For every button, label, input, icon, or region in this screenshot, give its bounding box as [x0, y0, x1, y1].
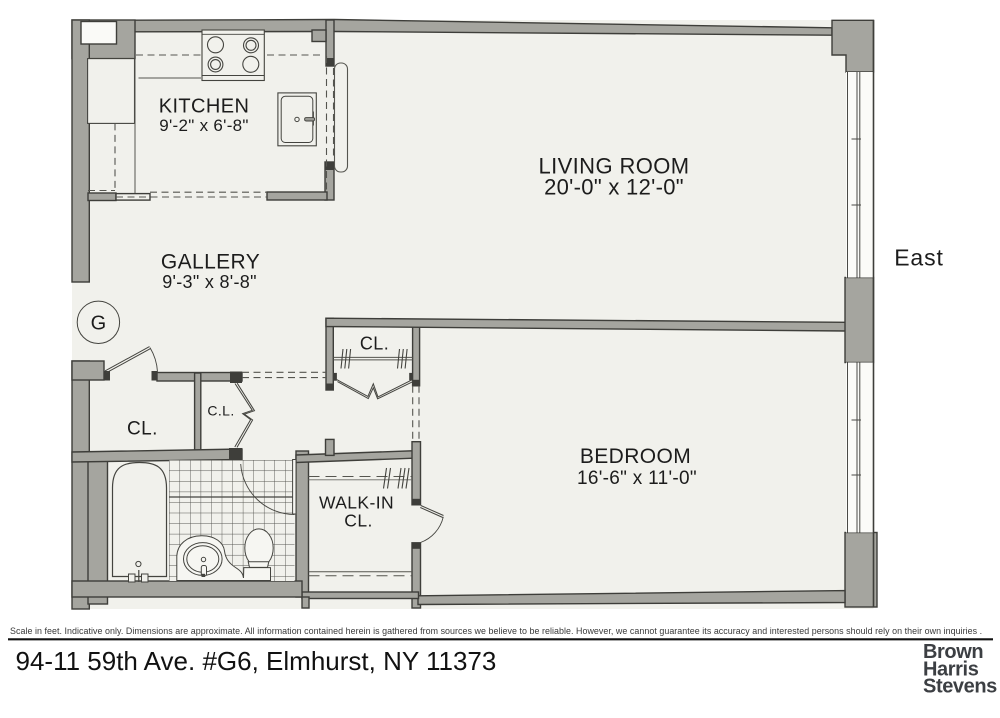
svg-text:Stevens: Stevens: [923, 676, 997, 698]
svg-text:9'-2" x 6'-8": 9'-2" x 6'-8": [159, 116, 249, 135]
svg-text:GALLERY: GALLERY: [161, 251, 260, 274]
svg-text:9'-3" x 8'-8": 9'-3" x 8'-8": [162, 272, 257, 292]
svg-text:16'-6" x 11'-0": 16'-6" x 11'-0": [577, 468, 697, 489]
svg-text:20'-0" x 12'-0": 20'-0" x 12'-0": [544, 175, 684, 200]
svg-text:CL.: CL.: [360, 334, 389, 354]
svg-text:East: East: [894, 245, 944, 271]
svg-text:BEDROOM: BEDROOM: [580, 445, 691, 468]
svg-text:CL.: CL.: [344, 511, 372, 531]
svg-text:C.L.: C.L.: [207, 403, 234, 419]
svg-text:G: G: [91, 313, 107, 335]
svg-text:Scale in feet. Indicative only: Scale in feet. Indicative only. Dimensio…: [10, 626, 982, 636]
svg-text:CL.: CL.: [127, 419, 158, 440]
svg-text:94-11 59th Ave. #G6, Elmhurst,: 94-11 59th Ave. #G6, Elmhurst, NY 11373: [16, 646, 497, 676]
svg-text:WALK-IN: WALK-IN: [319, 493, 394, 513]
svg-text:KITCHEN: KITCHEN: [159, 96, 250, 118]
